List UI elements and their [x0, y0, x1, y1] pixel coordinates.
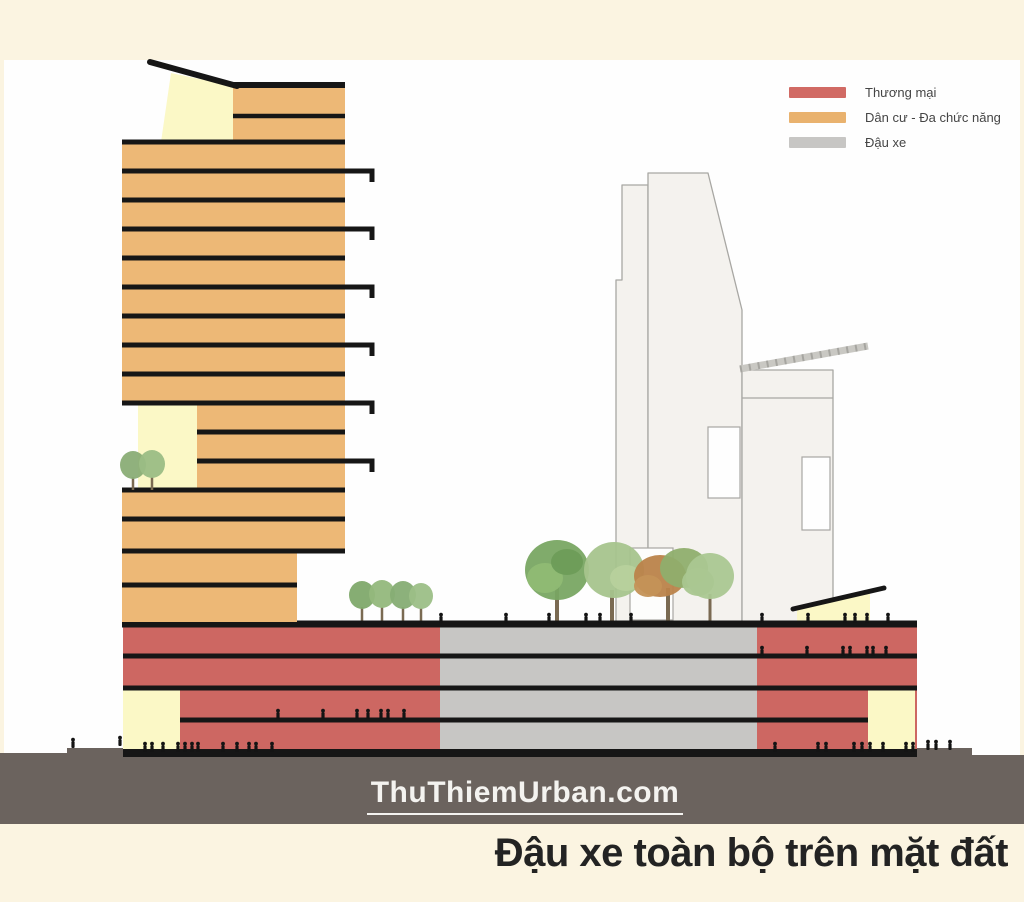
ground — [0, 748, 1024, 824]
section-diagram: Thương mại Dân cư - Đa chức năng Đậu xe … — [0, 0, 1024, 902]
commercial-color-swatch — [789, 87, 846, 98]
residential-color-swatch — [789, 112, 846, 123]
legend-label: Thương mại — [865, 86, 936, 99]
legend-label: Dân cư - Đa chức năng — [865, 111, 1001, 124]
diagram-caption: Đậu xe toàn bộ trên mặt đất — [495, 831, 1008, 876]
background-building — [616, 173, 868, 622]
legend-label: Đậu xe — [865, 136, 906, 149]
parking-color-swatch — [789, 137, 846, 148]
legend-item-residential: Dân cư - Đa chức năng — [789, 111, 1001, 124]
tower-top-block — [233, 85, 345, 142]
legend: Thương mại Dân cư - Đa chức năng Đậu xe — [789, 86, 1001, 149]
legend-item-commercial: Thương mại — [789, 86, 1001, 99]
legend-item-parking: Đậu xe — [789, 136, 1001, 149]
tower-sky-terrace — [138, 405, 197, 490]
main-tower — [122, 62, 372, 622]
louver-canopy — [740, 346, 868, 369]
podium-lobby-right — [868, 688, 915, 750]
